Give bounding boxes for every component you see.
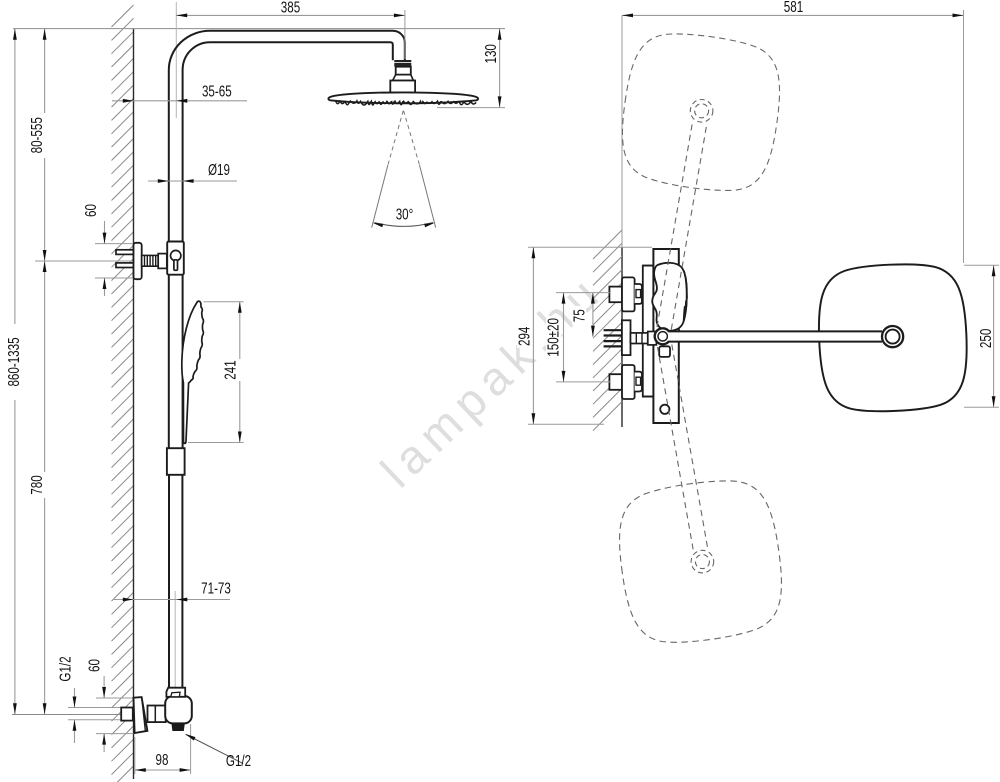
svg-text:250: 250 <box>977 328 994 348</box>
svg-text:71-73: 71-73 <box>201 580 231 597</box>
svg-text:98: 98 <box>156 752 169 769</box>
svg-text:780: 780 <box>29 475 46 495</box>
svg-text:75: 75 <box>571 309 588 322</box>
svg-text:35-65: 35-65 <box>202 83 232 100</box>
svg-text:130: 130 <box>482 44 499 64</box>
svg-text:385: 385 <box>281 0 301 16</box>
svg-text:Ø19: Ø19 <box>208 161 230 178</box>
svg-text:30°: 30° <box>396 206 414 223</box>
svg-text:80-555: 80-555 <box>28 117 45 153</box>
svg-text:G1/2: G1/2 <box>57 656 74 681</box>
svg-text:60: 60 <box>83 204 100 217</box>
svg-text:860-1335: 860-1335 <box>5 337 22 386</box>
svg-text:241: 241 <box>222 360 239 379</box>
svg-text:294: 294 <box>516 326 533 346</box>
svg-text:150±20: 150±20 <box>545 318 562 357</box>
svg-text:60: 60 <box>86 659 103 672</box>
svg-text:G1/2: G1/2 <box>226 753 251 770</box>
svg-text:581: 581 <box>784 0 803 15</box>
